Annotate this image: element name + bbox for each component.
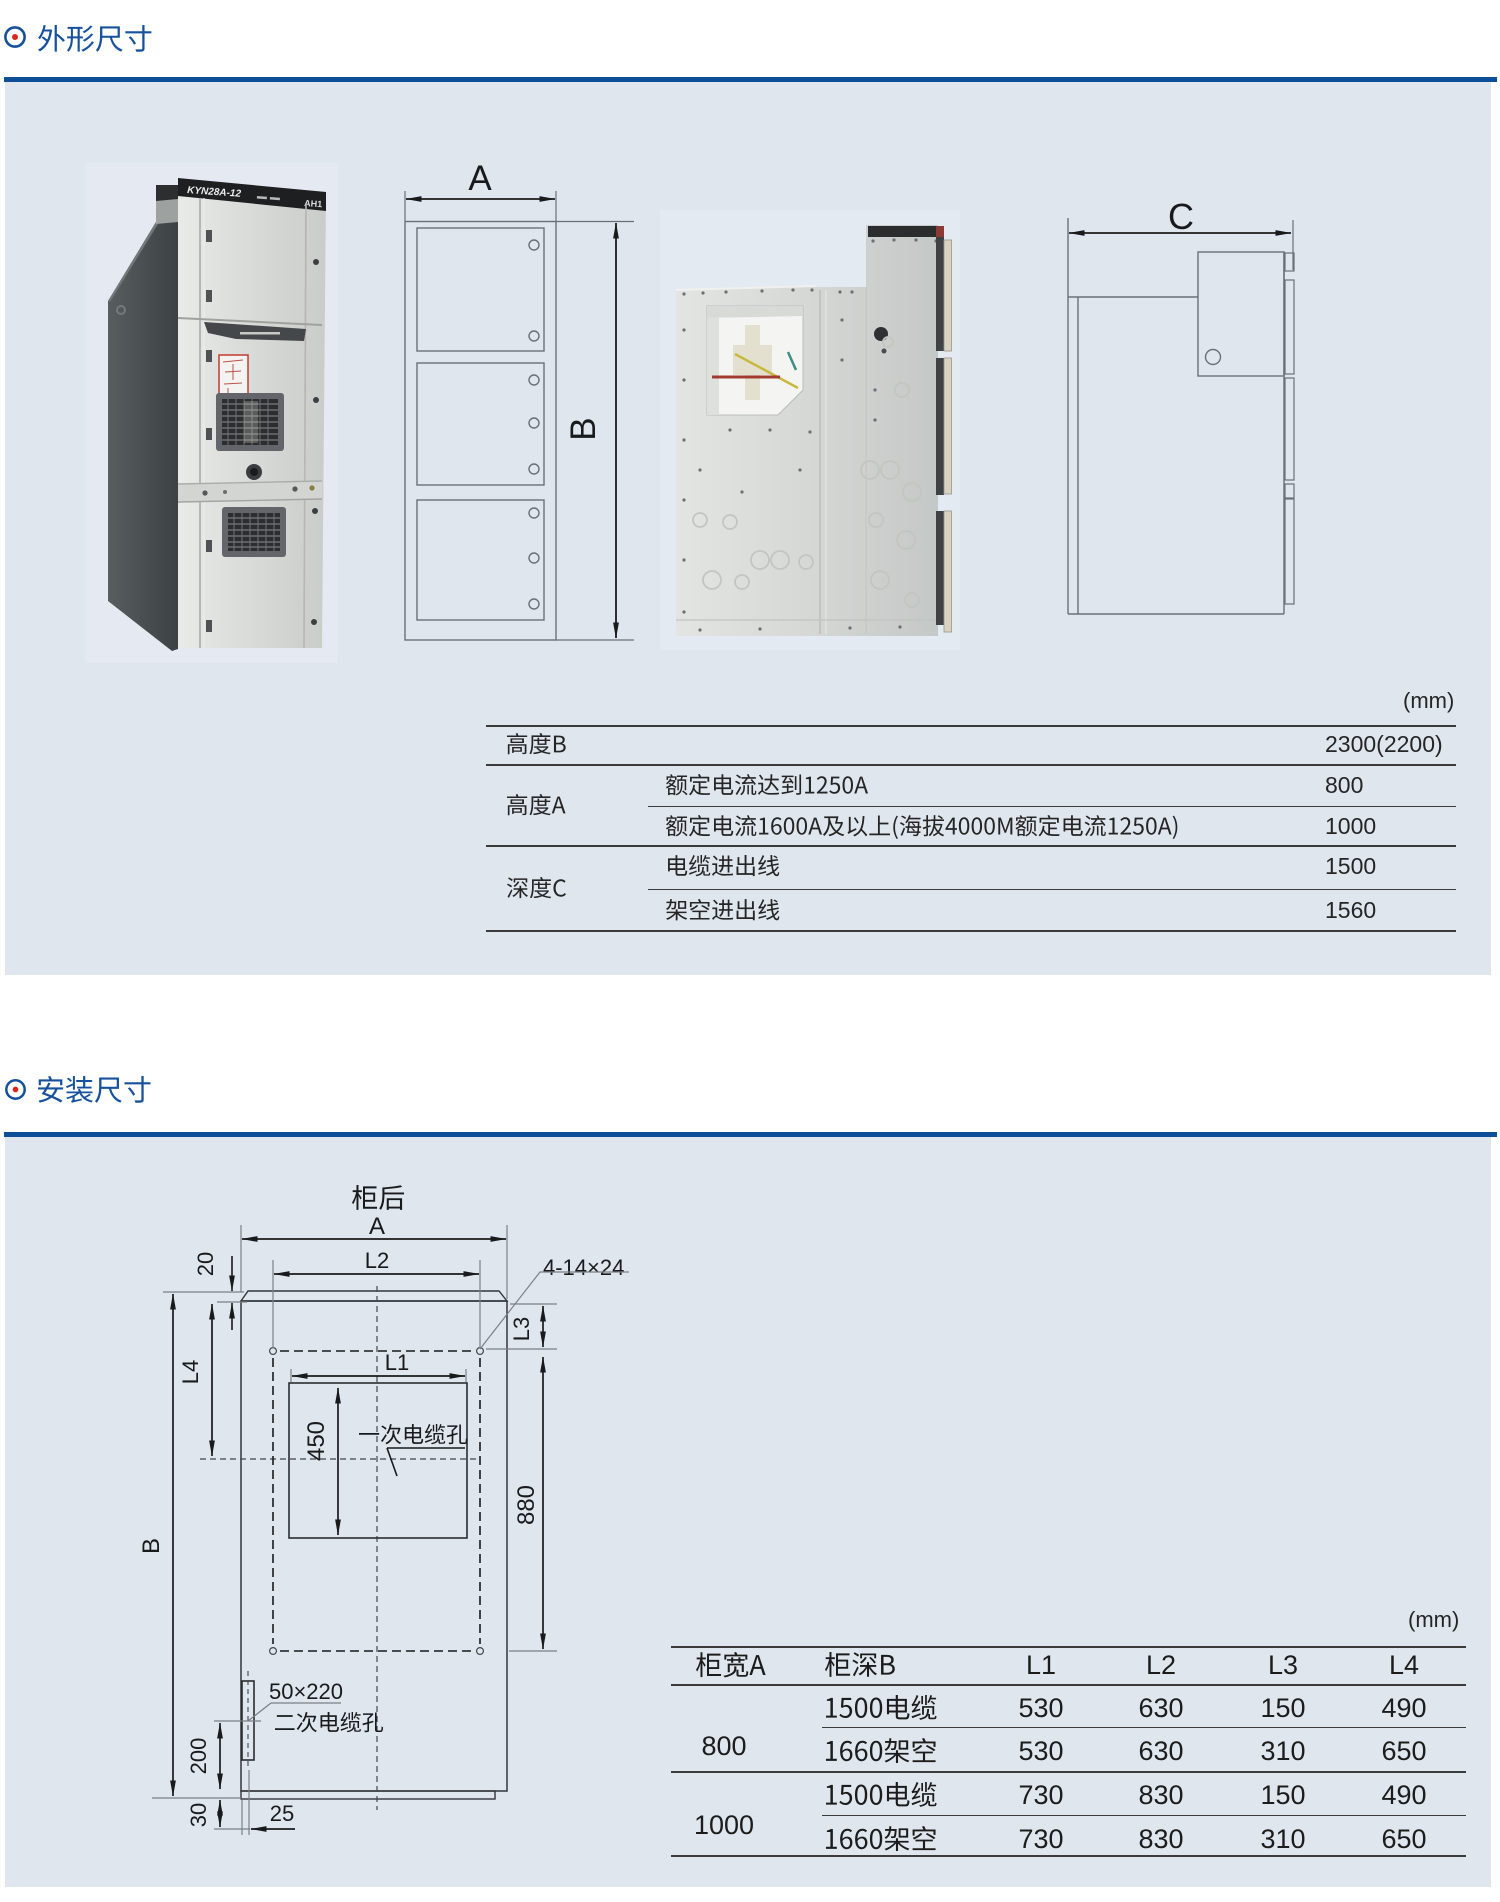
svg-text:L3: L3 <box>509 1317 534 1341</box>
svg-text:25: 25 <box>270 1801 294 1826</box>
svg-text:L1: L1 <box>385 1350 409 1375</box>
svg-text:B: B <box>564 417 603 440</box>
svg-text:L2: L2 <box>365 1248 389 1273</box>
svg-text:B: B <box>140 1538 165 1554</box>
svg-text:30: 30 <box>186 1803 211 1827</box>
svg-text:A: A <box>468 159 492 198</box>
svg-text:50×220: 50×220 <box>269 1679 343 1704</box>
svg-text:20: 20 <box>193 1252 218 1276</box>
svg-text:4-14×24: 4-14×24 <box>543 1255 624 1280</box>
svg-text:200: 200 <box>186 1738 211 1775</box>
svg-text:C: C <box>1168 196 1194 237</box>
svg-text:A: A <box>369 1213 385 1240</box>
svg-text:880: 880 <box>513 1485 540 1525</box>
svg-text:L4: L4 <box>178 1360 203 1384</box>
svg-text:450: 450 <box>303 1421 330 1461</box>
